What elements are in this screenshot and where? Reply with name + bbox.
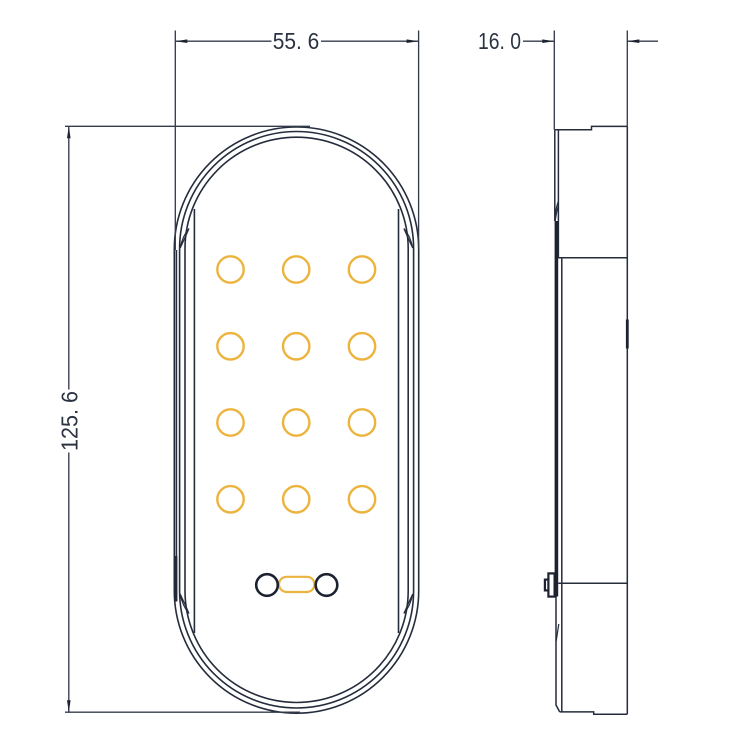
svg-text:125. 6: 125. 6 (56, 391, 82, 451)
svg-text:55. 6: 55. 6 (273, 28, 320, 54)
svg-text:16. 0: 16. 0 (478, 28, 521, 54)
